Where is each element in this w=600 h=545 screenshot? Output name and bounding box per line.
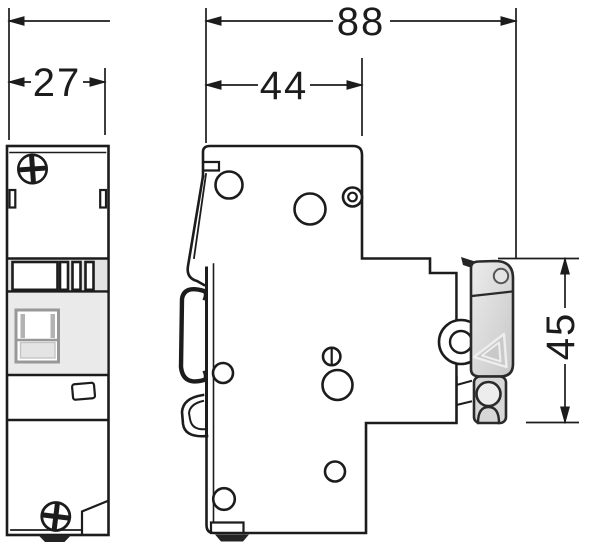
side-view <box>181 146 513 542</box>
hole-lower-center <box>325 462 345 482</box>
front-face-slant <box>188 176 204 285</box>
latch-cylinder-inner <box>450 331 472 353</box>
din-rail-claw <box>181 162 244 533</box>
front-bottom-tab <box>39 535 72 542</box>
latch-assembly <box>439 257 513 423</box>
dimension-body-depth-label: 44 <box>260 64 309 108</box>
dimension-front-width-label: 27 <box>33 61 82 105</box>
terminal-band <box>8 259 107 292</box>
terminal-slots <box>60 262 94 290</box>
front-view <box>7 146 109 542</box>
hole-top-center <box>295 194 326 225</box>
latch-hole <box>494 269 508 283</box>
lower-claw-inner <box>189 401 207 429</box>
arrowhead <box>9 78 24 86</box>
terminal-opening <box>13 262 58 290</box>
arrowhead <box>561 407 570 423</box>
arrowhead <box>206 81 221 89</box>
arrowhead <box>347 81 362 89</box>
front-face-notch <box>204 162 220 171</box>
arrowhead <box>561 259 570 275</box>
hole-mid-left <box>213 363 233 383</box>
slot-screw-icon <box>323 348 340 365</box>
front-left-slot <box>10 190 16 208</box>
bottom-foot-step <box>211 523 244 534</box>
dimension-rail-height-label: 45 <box>539 312 583 361</box>
front-right-slot <box>100 190 106 208</box>
phillips-screw-icon <box>17 154 47 184</box>
hole-mid-center <box>323 370 353 400</box>
rail-channel <box>181 289 204 381</box>
screw-hole-icon <box>343 188 362 207</box>
rail-channel-hook-bottom <box>204 372 205 380</box>
clip-roller <box>477 382 501 406</box>
dimension-body-depth: 44 <box>206 58 362 136</box>
side-holes <box>213 172 362 510</box>
dimension-front-width: 27 <box>9 8 110 140</box>
rail-channel-hook-top <box>204 291 205 299</box>
side-bottom-tab <box>215 535 249 542</box>
toggle-button <box>72 383 95 400</box>
mounting-clip <box>474 377 506 424</box>
arrowhead <box>501 17 516 25</box>
arrowhead <box>206 17 221 25</box>
label-window <box>16 310 59 362</box>
label-area <box>8 293 107 375</box>
latch-foot-lines <box>457 381 472 405</box>
arrowhead <box>90 78 105 86</box>
dimension-total-depth-label: 88 <box>337 0 386 44</box>
hole-top-left <box>216 172 243 199</box>
hole-lower-left <box>213 488 235 510</box>
technical-drawing: 27 88 44 45 <box>0 0 600 545</box>
arrowhead <box>9 17 24 25</box>
